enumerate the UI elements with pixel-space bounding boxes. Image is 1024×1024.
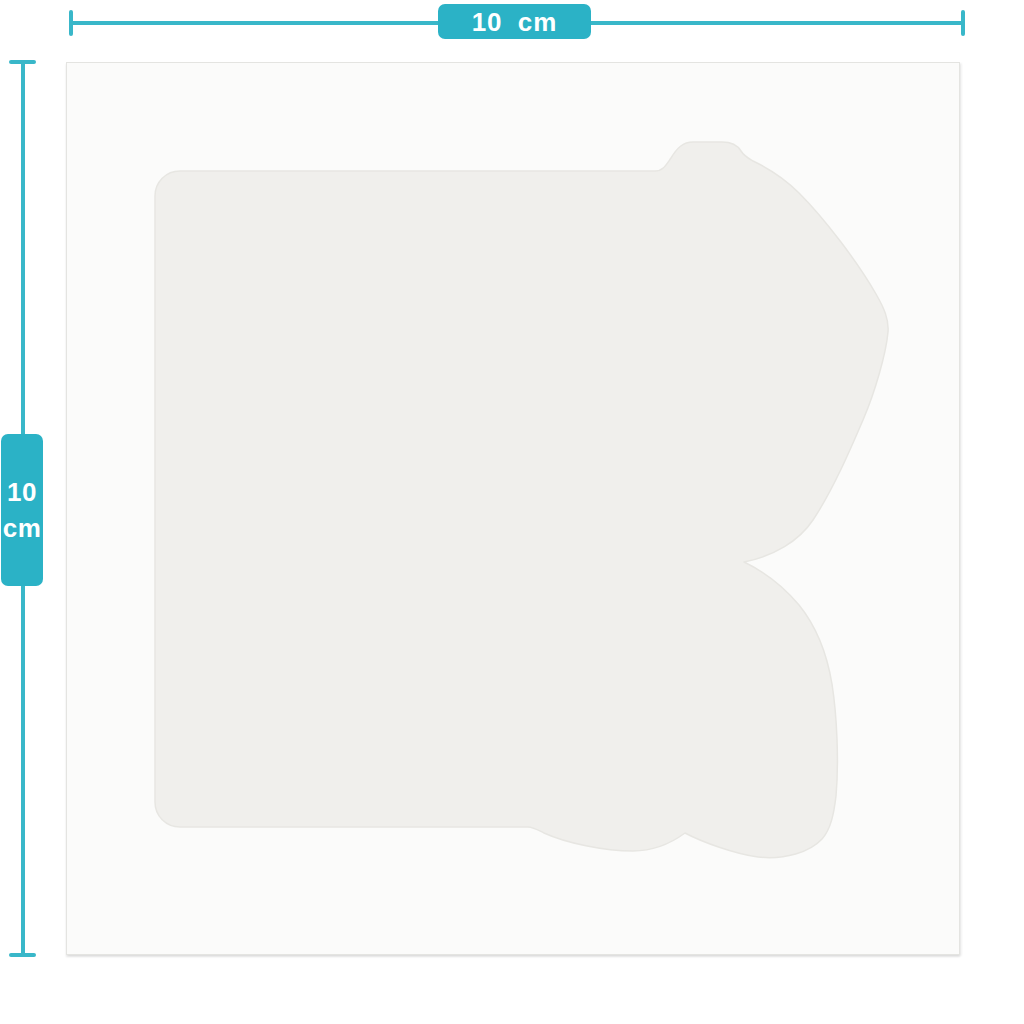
vertical-dimension-badge: 10 cm [1,434,43,586]
product-dimension-diagram: 10 cm 10 cm [0,0,1024,1024]
horizontal-dimension-right-tick [961,10,965,36]
backing-sheet [66,62,960,955]
horizontal-dimension-label: 10 cm [472,9,558,35]
horizontal-dimension-badge: 10 cm [438,4,591,39]
horizontal-dimension-left-tick [69,10,73,36]
vertical-dimension-top-tick [9,60,36,64]
vertical-dimension-bottom-tick [9,953,36,957]
vertical-dimension-unit: cm [3,515,42,541]
vertical-dimension-value: 10 [7,479,37,505]
